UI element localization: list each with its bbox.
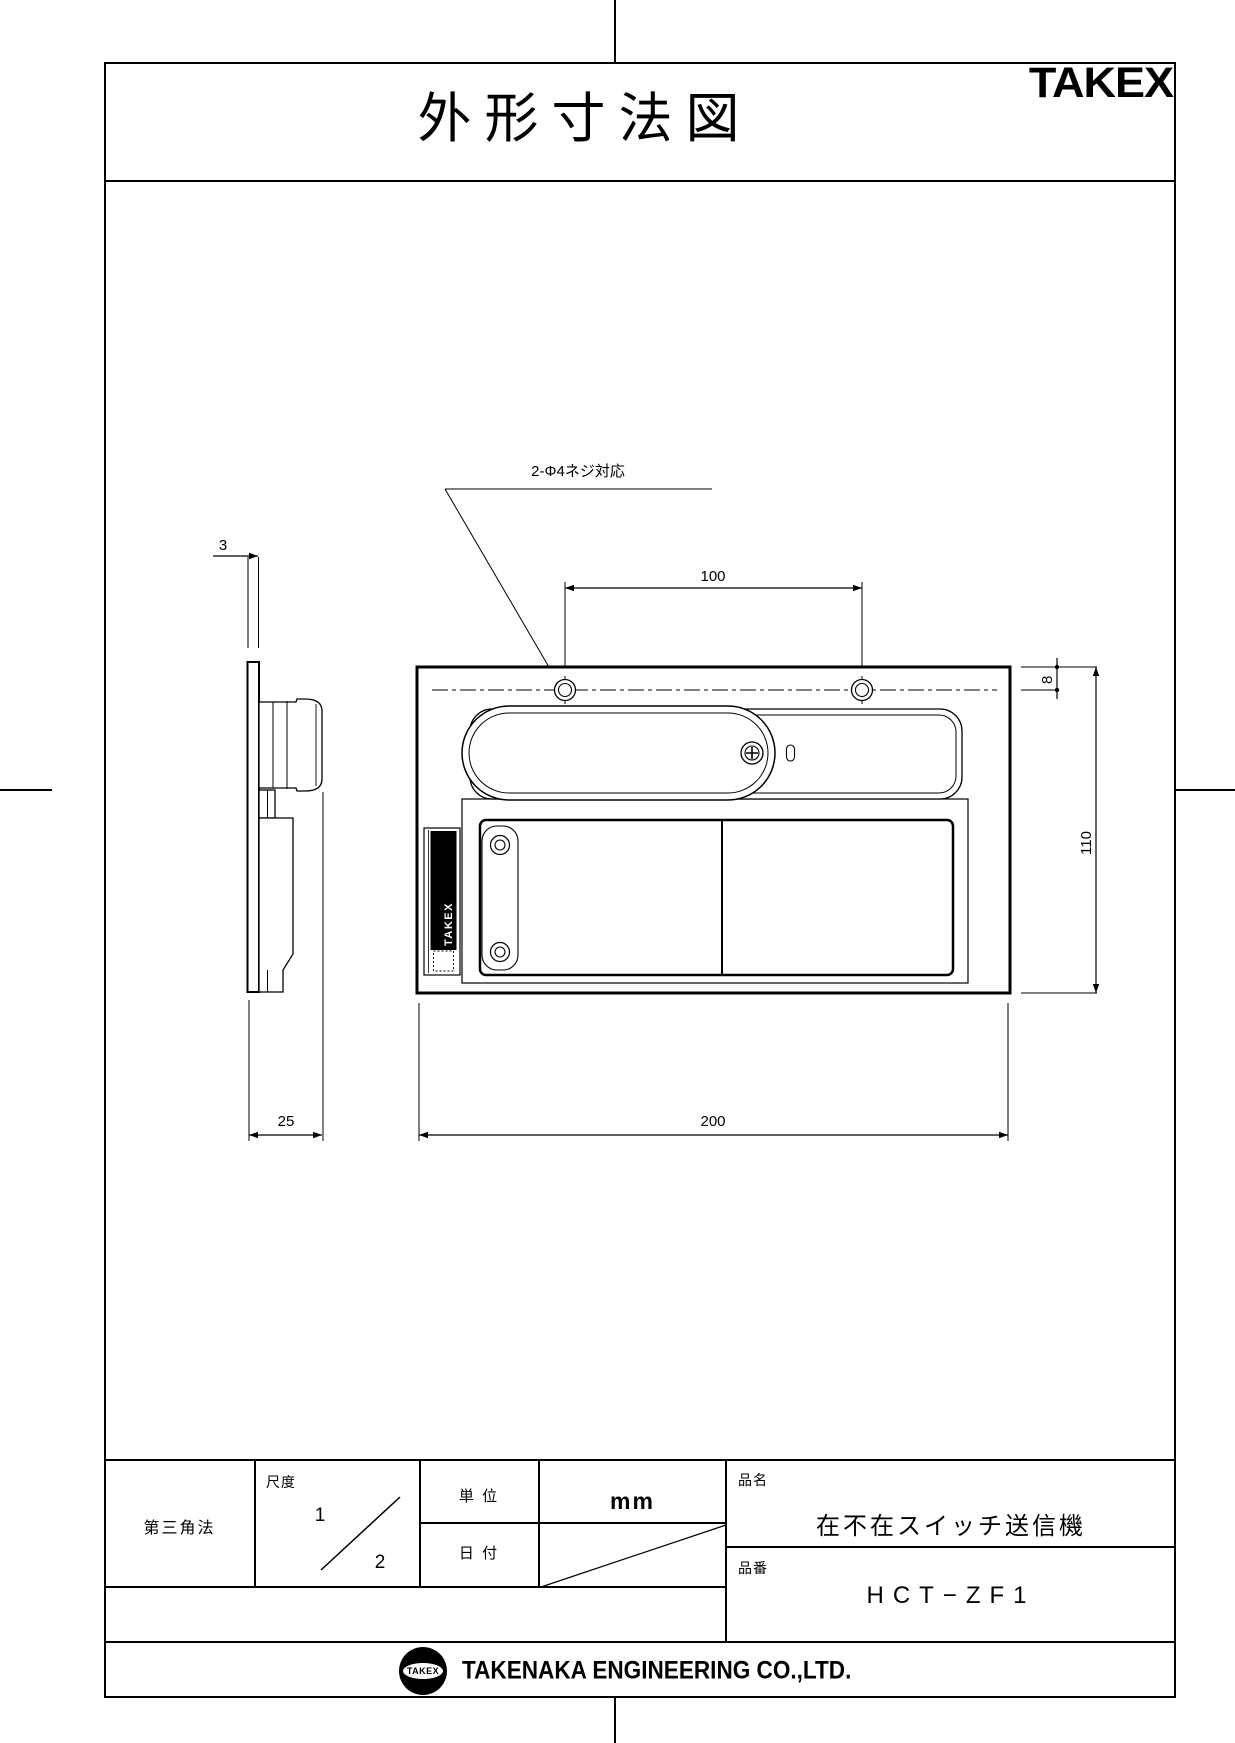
titleblock-line — [725, 1546, 1176, 1548]
product-name-label: 品名 — [738, 1470, 768, 1490]
product-number-label: 品番 — [738, 1558, 768, 1578]
product-number-value: HCT−ZF1 — [726, 1582, 1176, 1610]
strip-label: TAKEX — [443, 902, 455, 946]
front-view: 2-Φ4ネジ対応 100 — [417, 463, 1099, 1141]
dim-plate-thickness: 3 — [219, 537, 227, 554]
side-plate — [248, 662, 260, 992]
compartment — [480, 820, 953, 975]
slider-knob — [462, 706, 775, 800]
side-knob — [259, 699, 322, 791]
scale-denominator: 2 — [360, 1552, 400, 1574]
dim-body-height: 110 — [1078, 831, 1095, 855]
titleblock-line — [538, 1459, 540, 1588]
takex-badge-icon: TAKEX — [399, 1647, 447, 1695]
drawing-sheet: 外形寸法図 TAKEX 3 — [0, 0, 1235, 1743]
date-label: 日 付 — [420, 1542, 538, 1563]
product-name-value: 在不在スイッチ送信機 — [726, 1506, 1176, 1541]
badge-label: TAKEX — [403, 1663, 443, 1679]
titleblock-line — [419, 1459, 421, 1588]
titleblock-line — [419, 1522, 726, 1524]
company-name: TAKENAKA ENGINEERING CO.,LTD. — [462, 1656, 851, 1685]
titleblock-top-line — [104, 1459, 1176, 1461]
dim-hole-offset: 8 — [1039, 676, 1056, 684]
dim-body-width: 200 — [700, 1113, 725, 1130]
dimension-drawing: 3 25 — [0, 0, 1235, 1743]
slider-screw-icon — [741, 742, 763, 764]
titleblock-line — [104, 1586, 726, 1588]
titleblock-line — [725, 1459, 727, 1643]
slot-mark-icon — [787, 745, 795, 761]
side-lower-housing — [259, 818, 293, 992]
date-slash — [541, 1525, 726, 1587]
unit-value: mm — [539, 1488, 726, 1515]
takex-strip: TAKEX — [424, 828, 460, 975]
dim-hole-spacing: 100 — [700, 568, 725, 585]
unit-label: 単 位 — [420, 1485, 538, 1506]
side-view: 3 25 — [213, 537, 323, 1141]
scale-numerator: 1 — [300, 1505, 340, 1527]
titleblock-bottom-line — [104, 1641, 1176, 1643]
projection-method: 第三角法 — [104, 1514, 255, 1538]
leader-label: 2-Φ4ネジ対応 — [531, 463, 625, 480]
dim-side-depth: 25 — [278, 1113, 295, 1130]
scale-label: 尺度 — [266, 1472, 296, 1492]
